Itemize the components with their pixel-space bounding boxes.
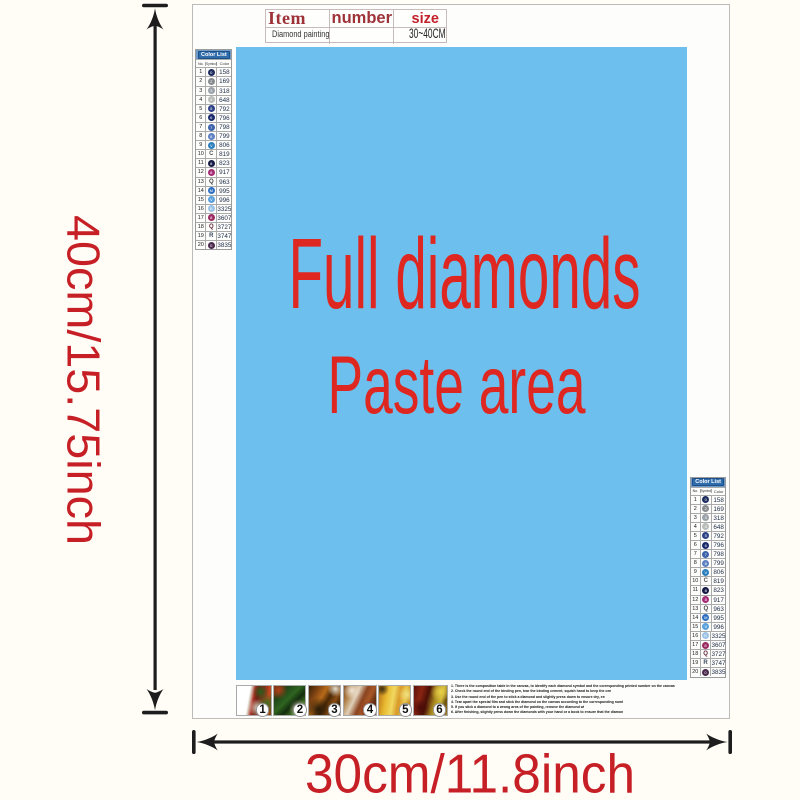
svg-text:Paste area: Paste area xyxy=(328,340,586,430)
svg-text:Full diamonds: Full diamonds xyxy=(289,218,641,330)
svg-text:30cm/11.8inch: 30cm/11.8inch xyxy=(305,745,635,800)
svg-text:40cm/15.75inch: 40cm/15.75inch xyxy=(58,215,110,545)
